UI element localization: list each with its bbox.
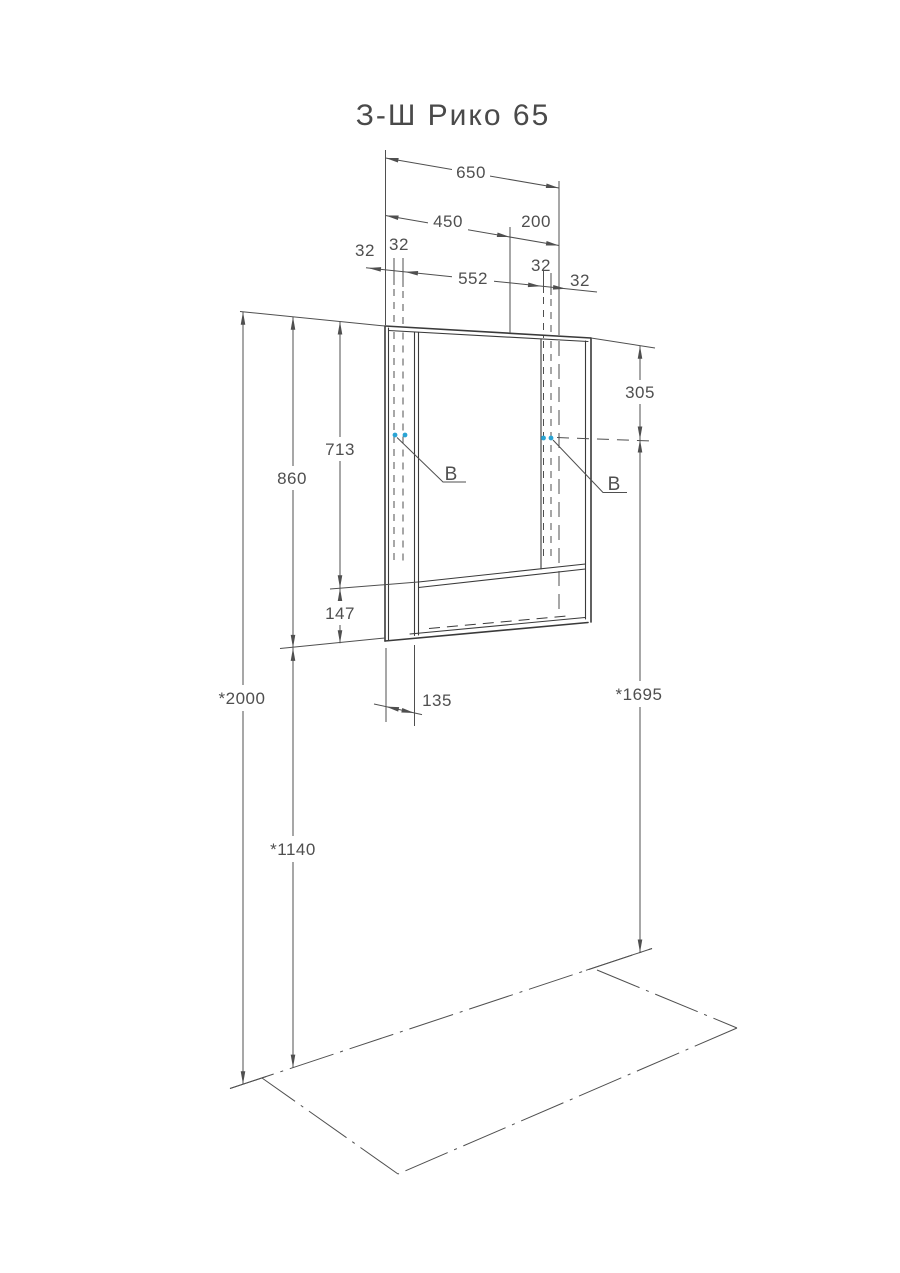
dim-offset-left-2: 32 xyxy=(389,235,409,254)
technical-drawing-page: 650 450 200 32 32 552 32 32 860 713 147 … xyxy=(0,0,900,1273)
dim-offset-left-1: 32 xyxy=(355,241,375,260)
dimension-labels: 650 450 200 32 32 552 32 32 860 713 147 … xyxy=(219,163,663,859)
label-gaps xyxy=(213,160,667,862)
dim-height-shelf: 147 xyxy=(325,604,355,623)
dim-width-open: 200 xyxy=(521,212,551,231)
floor-outline xyxy=(230,949,737,1175)
diagram-title: З-Ш Рико 65 xyxy=(356,99,551,132)
extension-lines xyxy=(240,150,655,726)
mounting-point-icon xyxy=(393,433,398,438)
dim-height-cabinet: 860 xyxy=(277,469,307,488)
dimension-lines xyxy=(243,158,640,1084)
mount-label-left: B xyxy=(445,464,458,485)
dim-floor-to-bottom: *1140 xyxy=(270,840,316,859)
mounting-point-icon xyxy=(549,436,554,441)
dim-height-door: 713 xyxy=(325,440,355,459)
dimension-arrows xyxy=(241,156,643,1084)
mounting-point-icon xyxy=(403,433,408,438)
dim-width-inner: 552 xyxy=(458,269,488,288)
cabinet-drawing xyxy=(385,326,591,641)
dim-floor-to-mount: *1695 xyxy=(616,685,663,704)
dim-offset-right-1: 32 xyxy=(531,256,551,275)
dim-width-door: 450 xyxy=(433,212,463,231)
dim-floor-to-top: *2000 xyxy=(219,689,266,708)
dim-depth: 135 xyxy=(422,691,452,710)
dim-width-total: 650 xyxy=(456,163,486,182)
mount-label-right: B xyxy=(608,474,621,495)
mounting-points xyxy=(393,433,627,493)
dim-offset-right-2: 32 xyxy=(570,271,590,290)
dim-top-to-mount: 305 xyxy=(625,383,655,402)
mounting-point-icon xyxy=(541,436,546,441)
cabinet-installation-diagram: 650 450 200 32 32 552 32 32 860 713 147 … xyxy=(0,0,900,1273)
